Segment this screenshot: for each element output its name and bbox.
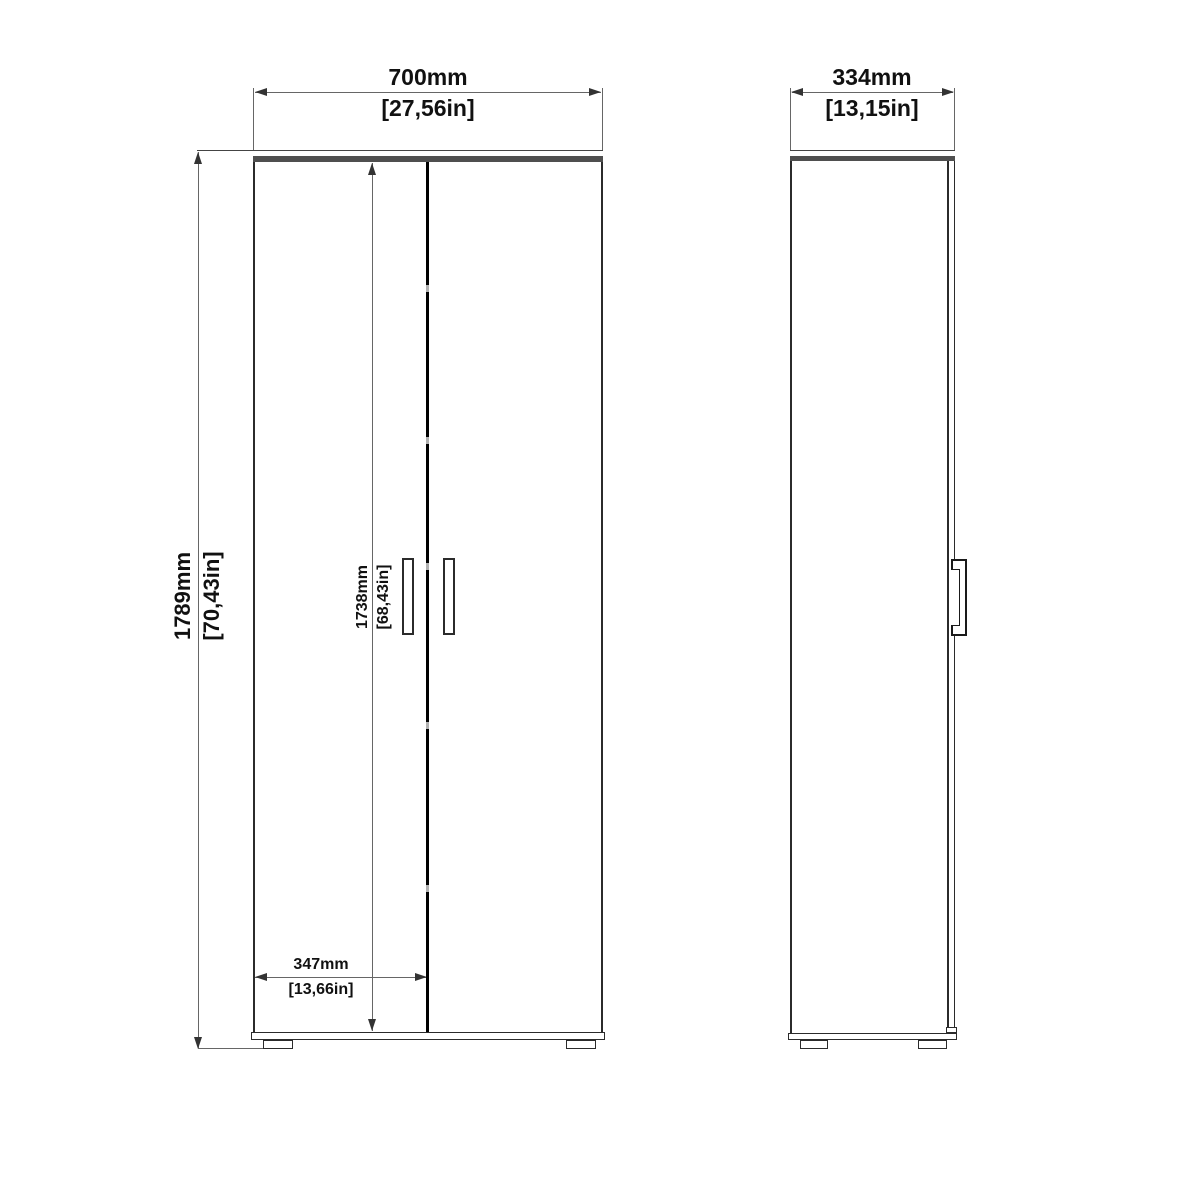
side-depth-ext-left bbox=[790, 88, 791, 150]
side-depth-inch-label: [13,15in] bbox=[747, 95, 997, 121]
side-top-edge-line bbox=[790, 150, 955, 151]
front-hinge-mark-1 bbox=[426, 285, 429, 292]
front-height-dim-line bbox=[198, 152, 199, 1049]
front-left-door-handle bbox=[402, 558, 414, 635]
front-width-ext-left bbox=[253, 88, 254, 150]
front-hinge-mark-3 bbox=[426, 563, 429, 570]
side-depth-mm-label: 334mm bbox=[747, 64, 997, 90]
side-depth-ext-right bbox=[954, 88, 955, 150]
side-front-foot bbox=[800, 1040, 828, 1049]
side-depth-dim-line bbox=[792, 92, 953, 93]
front-door-gap-line bbox=[426, 162, 429, 1032]
front-width-ext-right bbox=[602, 88, 603, 150]
front-height-arrow-top-icon bbox=[194, 152, 202, 164]
front-right-foot bbox=[566, 1040, 596, 1049]
front-height-ext-bottom bbox=[198, 1048, 264, 1049]
side-door-handle-notch bbox=[951, 569, 960, 626]
front-width-inch-label: [27,56in] bbox=[303, 95, 553, 121]
front-width-mm-label: 700mm bbox=[303, 64, 553, 90]
front-width-arrow-right-icon bbox=[589, 88, 601, 96]
front-height-inch-label: [70,43in] bbox=[200, 496, 224, 696]
side-back-foot bbox=[918, 1040, 947, 1049]
side-depth-arrow-right-icon bbox=[942, 88, 954, 96]
front-top-edge-line bbox=[197, 150, 603, 151]
front-right-door-handle bbox=[443, 558, 455, 635]
front-width-arrow-left-icon bbox=[255, 88, 267, 96]
front-width-dim-line bbox=[255, 92, 601, 93]
front-height-mm-label: 1789mm bbox=[171, 496, 195, 696]
front-plinth bbox=[251, 1032, 605, 1040]
front-left-foot bbox=[263, 1040, 293, 1049]
side-door-back-line bbox=[947, 161, 949, 1030]
side-depth-arrow-left-icon bbox=[791, 88, 803, 96]
side-cabinet-body bbox=[790, 161, 955, 1033]
front-hinge-mark-4 bbox=[426, 722, 429, 729]
side-plinth bbox=[788, 1033, 957, 1040]
front-hinge-mark-5 bbox=[426, 885, 429, 892]
front-hinge-mark-2 bbox=[426, 437, 429, 444]
